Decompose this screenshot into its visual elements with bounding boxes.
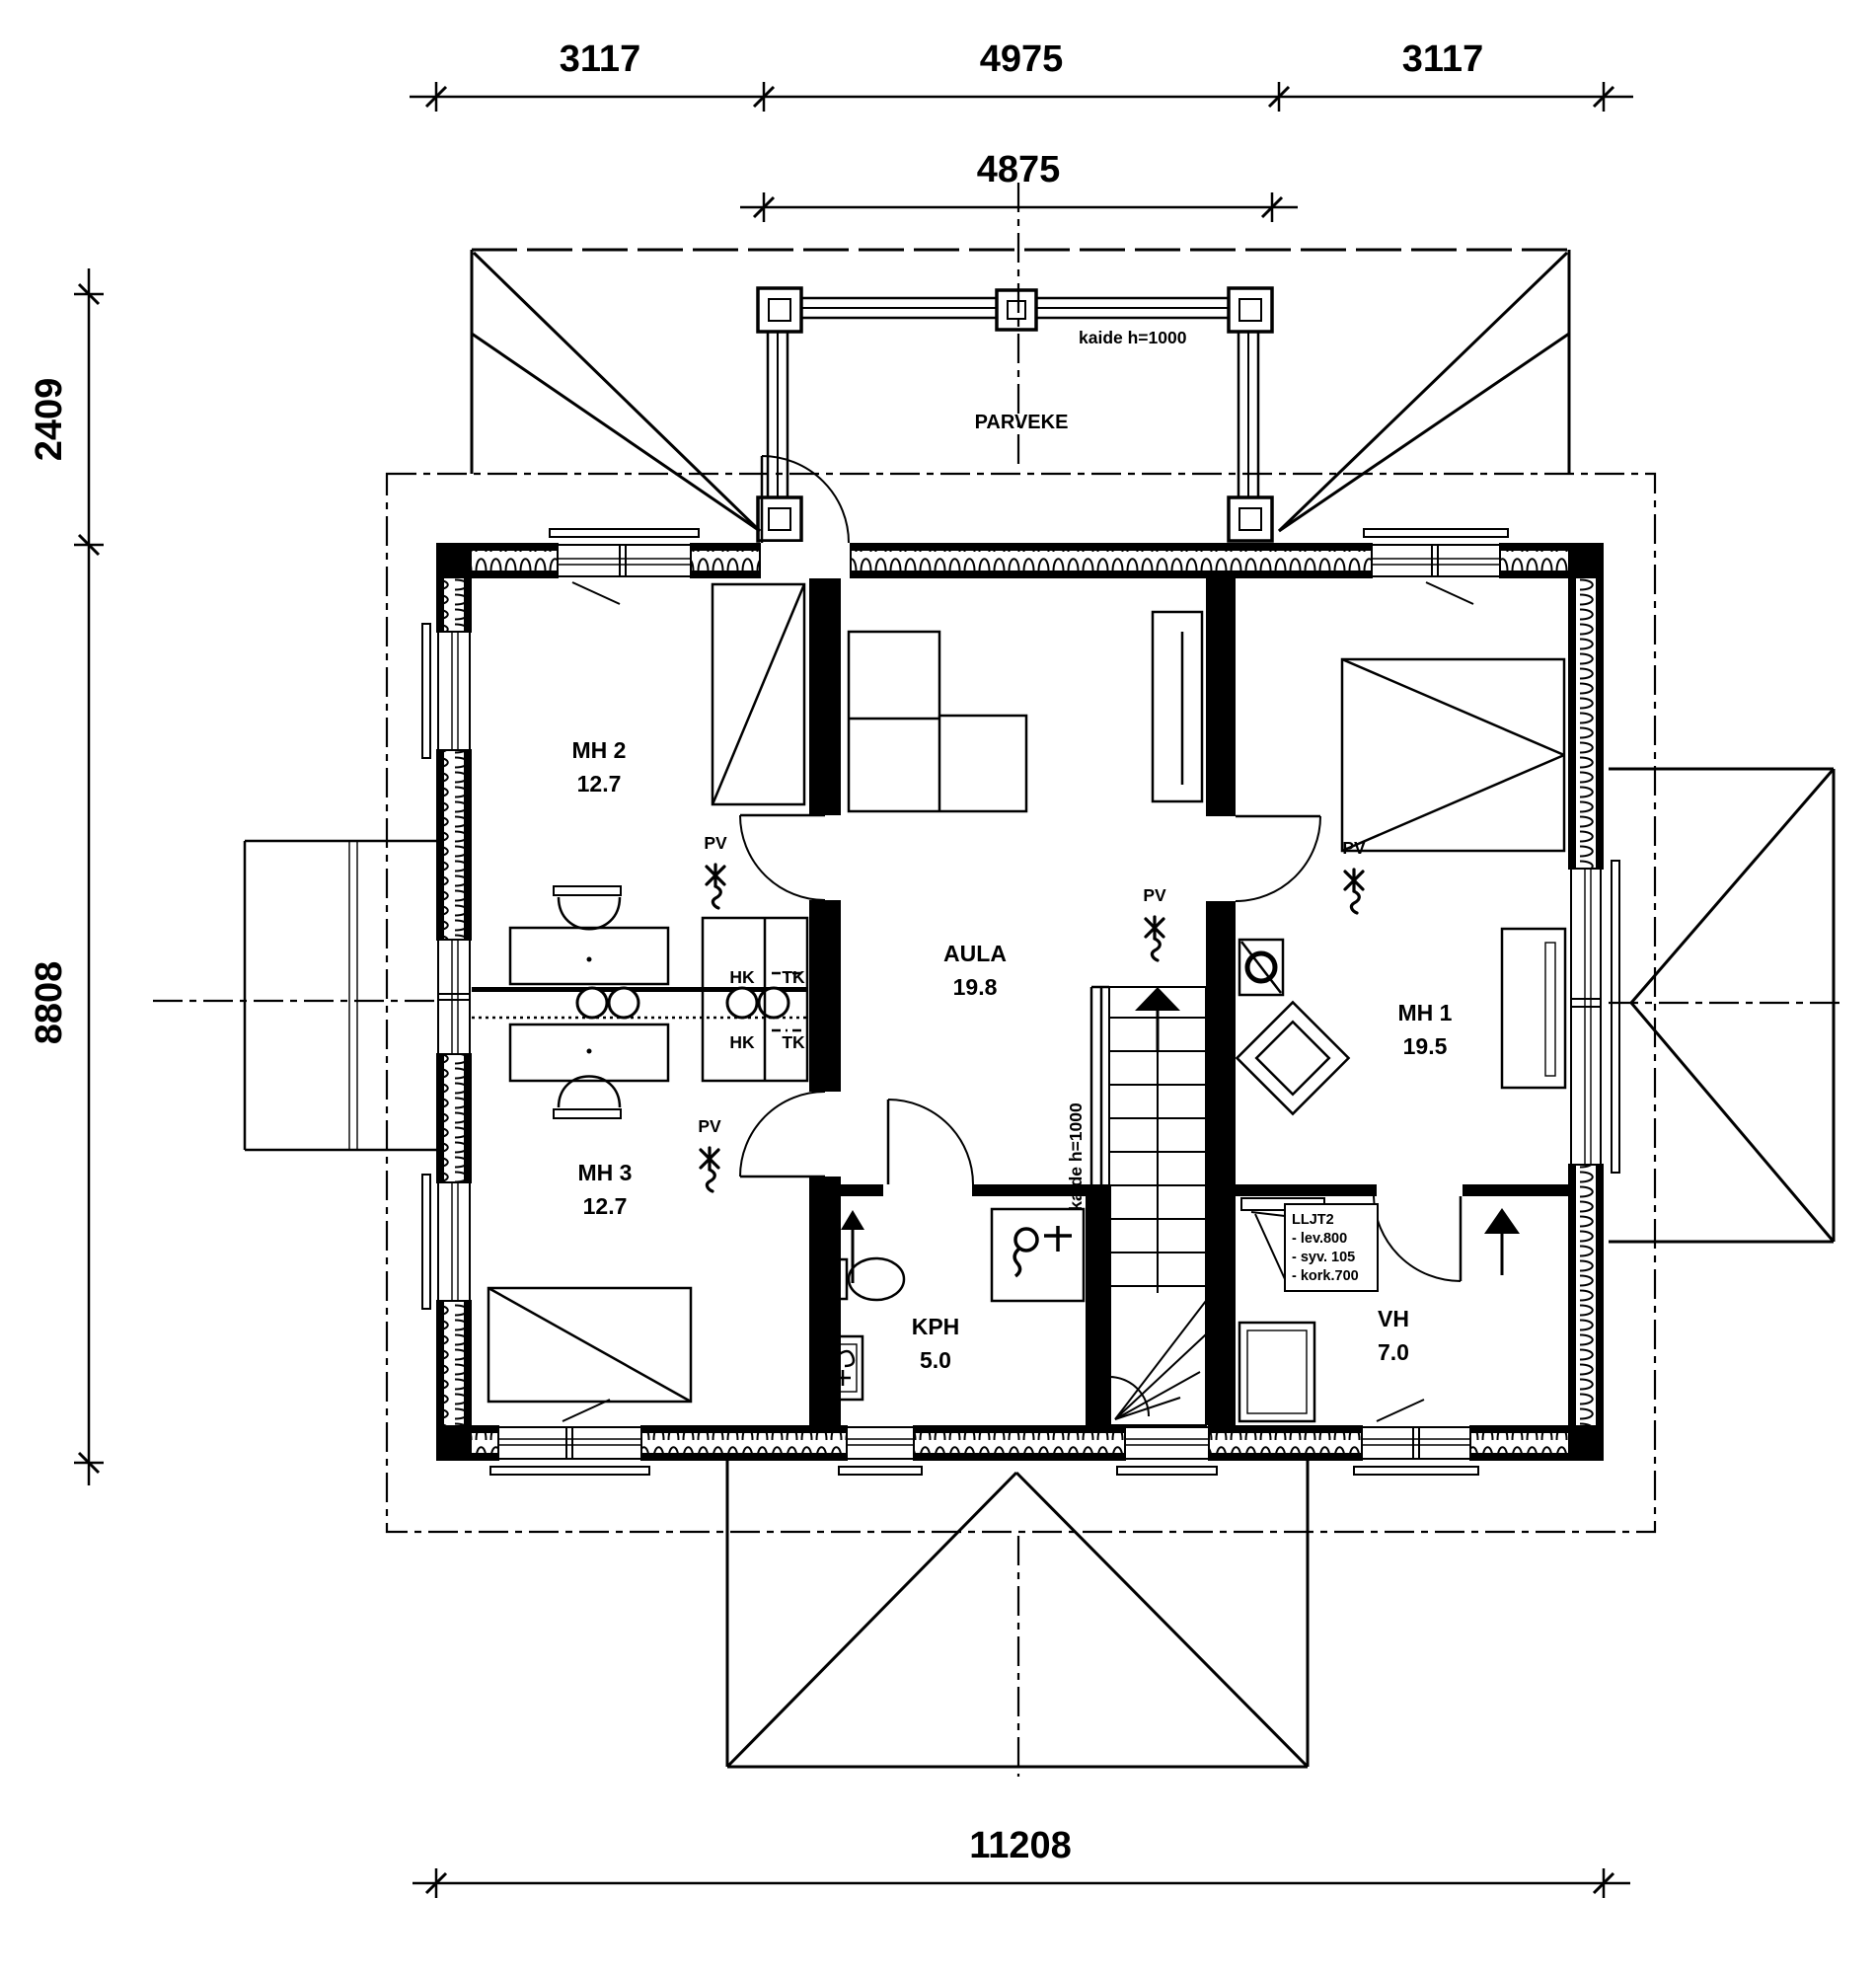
pv-symbols — [701, 865, 1363, 1191]
stair-winders — [1109, 1301, 1206, 1419]
room-label-mh1: MH 1 — [1398, 1000, 1453, 1025]
room-area-aula: 19.8 — [953, 974, 998, 1000]
desk-mh3 — [510, 1025, 668, 1118]
wall-kph-east — [1086, 1184, 1111, 1425]
bathroom-fixtures — [827, 1209, 1084, 1400]
pv-label-mh3: PV — [698, 1116, 721, 1136]
dim-bottom-total: 11208 — [969, 1825, 1072, 1866]
room-area-vh: 7.0 — [1378, 1339, 1409, 1365]
pv-label-mh2: PV — [704, 833, 727, 853]
window-top-left — [550, 529, 699, 604]
room-area-mh2: 12.7 — [577, 771, 622, 797]
porch-roof-hip-1 — [727, 1473, 1016, 1767]
partition-mh2-mh3 — [472, 987, 807, 1018]
sink — [827, 1336, 863, 1400]
wall-hall-west-lower — [809, 1177, 841, 1425]
dim-balcony-width: 4875 — [977, 149, 1061, 190]
desk-mh1 — [1502, 929, 1565, 1088]
right-gable-hip-2 — [1631, 1003, 1834, 1242]
sofa — [849, 632, 1026, 811]
staircase — [1091, 987, 1206, 1425]
cabinet-note-line1: - lev.800 — [1292, 1231, 1347, 1247]
bed-mh3 — [488, 1288, 691, 1402]
closet-label-tk-top: TK — [782, 967, 805, 987]
dim-top-right: 3117 — [1402, 38, 1483, 80]
room-label-mh3: MH 3 — [578, 1160, 633, 1185]
porch-roof-hip-2 — [1016, 1473, 1308, 1767]
room-label-kph: KPH — [912, 1314, 960, 1339]
pv-icon-mh3 — [701, 1148, 718, 1191]
dim-top-left: 3117 — [560, 38, 640, 80]
closet-label-tk-bottom: TK — [782, 1032, 805, 1052]
room-label-aula: AULA — [943, 941, 1007, 966]
wardrobe — [1153, 612, 1202, 801]
window-bottom-stair — [1117, 1424, 1217, 1475]
right-gable-hip-1 — [1631, 769, 1834, 1003]
pv-label-aula: PV — [1143, 885, 1166, 905]
roof-hip-right-2 — [1279, 334, 1569, 531]
armchair — [1237, 1002, 1348, 1113]
room-label-vh: VH — [1378, 1306, 1409, 1331]
room-area-kph: 5.0 — [920, 1347, 951, 1373]
bed-mh1 — [1342, 659, 1564, 851]
wall-hall-east-upper — [1206, 578, 1236, 816]
pv-icon-aula — [1146, 917, 1163, 960]
wall-vh-north-1 — [1236, 1184, 1377, 1196]
cabinet-note-line2: - syv. 105 — [1292, 1250, 1355, 1265]
door-mh3 — [740, 1092, 825, 1177]
balcony — [758, 288, 1272, 579]
window-bottom-kph — [839, 1424, 922, 1475]
window-top-right — [1364, 529, 1508, 604]
room-label-mh2: MH 2 — [572, 737, 627, 763]
window-bottom-mh3 — [490, 1400, 649, 1475]
window-left-mh3 — [422, 1175, 473, 1309]
door-mh2 — [740, 815, 825, 900]
floor-plan-sheet: PARVEKE kaide h=1000 MH 2 12.7 MH 3 12.7… — [0, 0, 1876, 1974]
wall-hall-west-mid — [809, 900, 841, 1092]
window-bottom-vh — [1354, 1400, 1478, 1475]
room-area-mh1: 19.5 — [1403, 1033, 1448, 1059]
roof-hip-left-1 — [474, 253, 760, 531]
dim-left-main: 8808 — [29, 961, 70, 1045]
cabinet-note-title: LLJT2 — [1292, 1212, 1334, 1228]
cabinet-note-box: LLJT2 - lev.800 - syv. 105 - kork.700 — [1251, 1204, 1378, 1291]
pv-icon-mh2 — [707, 865, 724, 908]
roof-hip-right-1 — [1279, 253, 1567, 531]
bed-mh2 — [713, 584, 804, 804]
floor-plan-drawing: PARVEKE kaide h=1000 MH 2 12.7 MH 3 12.7… — [0, 0, 1876, 1974]
roof-hip-left-2 — [472, 334, 760, 531]
pv-icon-mh1 — [1345, 870, 1363, 913]
desk-mh2 — [510, 886, 668, 984]
closet-label-hk-bottom: HK — [729, 1032, 755, 1052]
wall-hall-west-upper — [809, 578, 841, 815]
shower — [992, 1209, 1084, 1301]
dim-top-mid: 4975 — [980, 38, 1064, 80]
cabinet-note-line3: - kork.700 — [1292, 1268, 1359, 1284]
door-kph — [888, 1100, 973, 1184]
window-left-mh2 — [422, 624, 473, 758]
door-vh — [1374, 1196, 1461, 1281]
wall-vh-north-2 — [1463, 1184, 1568, 1196]
dim-left-upper: 2409 — [29, 378, 70, 462]
dim-bottom: 11208 — [413, 1825, 1630, 1898]
closet-label-hk-top: HK — [729, 967, 755, 987]
stair-railing-note: kaide h=1000 — [1066, 1102, 1086, 1211]
wall-kph-north-1 — [841, 1184, 883, 1196]
window-left-canopy — [435, 940, 473, 1054]
dim-top-chain: 3117 4975 3117 — [410, 38, 1633, 112]
fireplace-flue — [1239, 940, 1283, 995]
room-label-parveke: PARVEKE — [975, 412, 1069, 433]
dim-left-chain: 2409 8808 — [29, 268, 104, 1485]
wall-hall-east-lower — [1206, 901, 1236, 1425]
pv-label-mh1: PV — [1342, 838, 1366, 858]
vh-arrow — [1484, 1208, 1520, 1275]
window-right-mh1 — [1567, 861, 1619, 1173]
balcony-railing-note: kaide h=1000 — [1079, 328, 1187, 347]
room-area-mh3: 12.7 — [583, 1193, 628, 1219]
door-mh1 — [1236, 816, 1320, 901]
